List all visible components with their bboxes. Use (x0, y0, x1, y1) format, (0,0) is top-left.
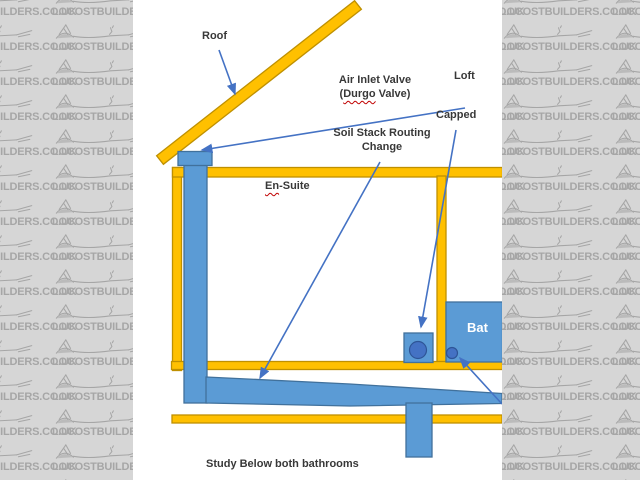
durgo-suffix: Valve) (376, 88, 411, 100)
locost-car-logo-icon (613, 163, 640, 182)
locost-car-logo-icon (501, 303, 596, 322)
locost-car-logo-icon (501, 338, 596, 357)
watermark-tile: LOCOSTBUILDERS.CO.UK (0, 268, 52, 303)
ensuite-suffix: -Suite (279, 180, 310, 192)
routing-line1: Soil Stack Routing (329, 126, 435, 140)
locost-car-logo-icon (613, 23, 640, 42)
watermark-tile: LOCOSTBUILDERS.CO.UK (500, 233, 612, 268)
watermark-text: LOCOSTBUILDERS.CO.UK (500, 6, 612, 19)
locost-car-logo-icon (0, 338, 36, 357)
ensuite-floor-joist (172, 362, 503, 370)
watermark-tile: LOCOSTBUILDERS.CO.UK (612, 303, 640, 338)
roof-arrow (219, 50, 235, 94)
watermark-tile: LOCOSTBUILDERS.CO.UK (0, 408, 52, 443)
watermark-tile: LOCOSTBUILDERS.CO.UK (612, 338, 640, 373)
locost-car-logo-icon (0, 303, 36, 322)
watermark-tile: LOCOSTBUILDERS.CO.UK (500, 373, 612, 408)
watermark-tile: LOCOSTBUILDERS.CO.UK (0, 233, 52, 268)
watermark-text: LOCOSTBUILDERS.CO.UK (0, 461, 52, 474)
watermark-tile: LOCOSTBUILDERS.CO.UK (500, 0, 612, 23)
watermark-tile: LOCOSTBUILDERS.CO.UK (612, 0, 640, 23)
locost-car-logo-icon (501, 268, 596, 287)
watermark-tile: LOCOSTBUILDERS.CO.UK (500, 58, 612, 93)
locost-car-logo-icon (501, 58, 596, 77)
routing-change-arrow (260, 162, 380, 378)
locost-car-logo-icon (613, 373, 640, 392)
roof-label: Roof (202, 29, 227, 43)
loft-label: Loft (454, 69, 475, 83)
locost-car-logo-icon (0, 128, 36, 147)
watermark-text: LOCOSTBUILDERS.CO.UK (500, 111, 612, 124)
watermark-text: LOCOSTBUILDERS.CO.UK (0, 181, 52, 194)
watermark-tile: LOCOSTBUILDERS.CO.UK (0, 58, 52, 93)
locost-car-logo-icon (613, 303, 640, 322)
watermark-tile: LOCOSTBUILDERS.CO.UK (500, 23, 612, 58)
locost-car-logo-icon (501, 373, 596, 392)
locost-car-logo-icon (613, 198, 640, 217)
locost-car-logo-icon (0, 163, 36, 182)
watermark-tile: LOCOSTBUILDERS.CO.UK (500, 408, 612, 443)
watermark-text: LOCOSTBUILDERS.CO.UK (0, 111, 52, 124)
locost-car-logo-icon (501, 443, 596, 462)
watermark-text: LOCOSTBUILDERS.CO.UK (612, 41, 640, 54)
soil-stack-vertical (184, 164, 207, 404)
locost-car-logo-icon (501, 233, 596, 252)
watermark-text: LOCOSTBUILDERS.CO.UK (612, 426, 640, 439)
watermark-text: LOCOSTBUILDERS.CO.UK (500, 216, 612, 229)
watermark-text: LOCOSTBUILDERS.CO.UK (500, 286, 612, 299)
locost-car-logo-icon (0, 23, 36, 42)
watermark-tile: LOCOSTBUILDERS.CO.UK (612, 58, 640, 93)
watermark-tile: LOCOSTBUILDERS.CO.UK (500, 163, 612, 198)
watermark-text: LOCOSTBUILDERS.CO.UK (500, 426, 612, 439)
watermark-text: LOCOSTBUILDERS.CO.UK (612, 216, 640, 229)
watermark-tile: LOCOSTBUILDERS.CO.UK (0, 128, 52, 163)
lower-stub-pipe (406, 403, 432, 457)
watermark-tile: LOCOSTBUILDERS.CO.UK (612, 163, 640, 198)
watermark-tile: LOCOSTBUILDERS.CO.UK (0, 93, 52, 128)
watermark-text: LOCOSTBUILDERS.CO.UK (0, 6, 52, 19)
lower-floor-joist (172, 415, 502, 423)
soil-stack-diagram (133, 0, 502, 480)
locost-car-logo-icon (613, 408, 640, 427)
locost-car-logo-icon (613, 268, 640, 287)
watermark-tile: LOCOSTBUILDERS.CO.UK (0, 198, 52, 233)
locost-car-logo-icon (613, 128, 640, 147)
watermark-text: LOCOSTBUILDERS.CO.UK (612, 251, 640, 264)
air-inlet-valve-label: Air Inlet Valve (Durgo Valve) (333, 73, 417, 101)
watermark-text: LOCOSTBUILDERS.CO.UK (500, 76, 612, 89)
watermark-tile: LOCOSTBUILDERS.CO.UK (0, 338, 52, 373)
locost-car-logo-icon (501, 408, 596, 427)
watermark-tile: LOCOSTBUILDERS.CO.UK (500, 338, 612, 373)
watermark-tile: LOCOSTBUILDERS.CO.UK (0, 443, 52, 478)
watermark-text: LOCOSTBUILDERS.CO.UK (500, 181, 612, 194)
watermark-tile: LOCOSTBUILDERS.CO.UK (0, 0, 52, 23)
watermark-tile: LOCOSTBUILDERS.CO.UK (0, 163, 52, 198)
watermark-text: LOCOSTBUILDERS.CO.UK (0, 286, 52, 299)
locost-car-logo-icon (613, 58, 640, 77)
watermark-text: LOCOSTBUILDERS.CO.UK (612, 181, 640, 194)
locost-car-logo-icon (0, 198, 36, 217)
left-wall (173, 168, 182, 371)
bathroom-label: Bat (467, 320, 488, 335)
watermark-tile: LOCOSTBUILDERS.CO.UK (612, 443, 640, 478)
locost-car-logo-icon (0, 268, 36, 287)
watermark-text: LOCOSTBUILDERS.CO.UK (0, 356, 52, 369)
bathroom-wall (437, 176, 446, 362)
soil-pipe-horizontal (206, 377, 502, 406)
watermark-tile: LOCOSTBUILDERS.CO.UK (612, 128, 640, 163)
watermark-tile: LOCOSTBUILDERS.CO.UK (612, 233, 640, 268)
watermark-text: LOCOSTBUILDERS.CO.UK (0, 426, 52, 439)
watermark-text: LOCOSTBUILDERS.CO.UK (0, 216, 52, 229)
watermark-text: LOCOSTBUILDERS.CO.UK (612, 321, 640, 334)
watermark-text: LOCOSTBUILDERS.CO.UK (500, 251, 612, 264)
loft-floor-joist (173, 168, 503, 178)
watermark-tile: LOCOSTBUILDERS.CO.UK (612, 373, 640, 408)
watermark-tile: LOCOSTBUILDERS.CO.UK (500, 303, 612, 338)
watermark-text: LOCOSTBUILDERS.CO.UK (0, 251, 52, 264)
locost-car-logo-icon (501, 128, 596, 147)
capped-pipe-end-circle (410, 342, 427, 359)
locost-car-logo-icon (0, 93, 36, 112)
watermark-tile: LOCOSTBUILDERS.CO.UK (0, 23, 52, 58)
watermark-tile: LOCOSTBUILDERS.CO.UK (500, 268, 612, 303)
watermark-text: LOCOSTBUILDERS.CO.UK (500, 146, 612, 159)
locost-car-logo-icon (0, 233, 36, 252)
watermark-text: LOCOSTBUILDERS.CO.UK (612, 111, 640, 124)
locost-car-logo-icon (613, 443, 640, 462)
locost-car-logo-icon (613, 93, 640, 112)
watermark-text: LOCOSTBUILDERS.CO.UK (612, 356, 640, 369)
locost-car-logo-icon (501, 93, 596, 112)
watermark-tile: LOCOSTBUILDERS.CO.UK (0, 373, 52, 408)
locost-car-logo-icon (613, 338, 640, 357)
watermark-text: LOCOSTBUILDERS.CO.UK (612, 6, 640, 19)
watermark-tile: LOCOSTBUILDERS.CO.UK (612, 408, 640, 443)
locost-car-logo-icon (0, 373, 36, 392)
locost-car-logo-icon (613, 233, 640, 252)
study-label: Study Below both bathrooms (206, 457, 359, 471)
watermark-tile: LOCOSTBUILDERS.CO.UK (500, 198, 612, 233)
locost-car-logo-icon (501, 198, 596, 217)
watermark-text: LOCOSTBUILDERS.CO.UK (0, 146, 52, 159)
watermark-text: LOCOSTBUILDERS.CO.UK (500, 356, 612, 369)
watermark-text: LOCOSTBUILDERS.CO.UK (612, 461, 640, 474)
locost-car-logo-icon (0, 443, 36, 462)
locost-car-logo-icon (501, 163, 596, 182)
watermark-text: LOCOSTBUILDERS.CO.UK (0, 76, 52, 89)
soil-stack-routing-label: Soil Stack Routing Change (329, 126, 435, 154)
locost-car-logo-icon (0, 408, 36, 427)
ensuite-word: En (265, 180, 279, 192)
watermark-text: LOCOSTBUILDERS.CO.UK (500, 391, 612, 404)
watermark-tile: LOCOSTBUILDERS.CO.UK (0, 303, 52, 338)
watermark-text: LOCOSTBUILDERS.CO.UK (500, 461, 612, 474)
diagram-panel: Roof Air Inlet Valve (Durgo Valve) Loft … (133, 0, 502, 480)
watermark-text: LOCOSTBUILDERS.CO.UK (500, 321, 612, 334)
air-inlet-valve-line2: (Durgo Valve) (333, 87, 417, 101)
watermark-text: LOCOSTBUILDERS.CO.UK (0, 41, 52, 54)
watermark-text: LOCOSTBUILDERS.CO.UK (0, 321, 52, 334)
capped-label: Capped (436, 108, 476, 122)
routing-line2: Change (329, 140, 435, 154)
durgo-valve-cap (178, 152, 212, 166)
durgo-word: Durgo (343, 88, 375, 100)
watermark-text: LOCOSTBUILDERS.CO.UK (0, 391, 52, 404)
watermark-text: LOCOSTBUILDERS.CO.UK (612, 76, 640, 89)
watermark-text: LOCOSTBUILDERS.CO.UK (612, 286, 640, 299)
bathroom-pipe-end-circle (447, 348, 458, 359)
watermark-text: LOCOSTBUILDERS.CO.UK (500, 41, 612, 54)
watermark-text: LOCOSTBUILDERS.CO.UK (612, 391, 640, 404)
watermark-text: LOCOSTBUILDERS.CO.UK (612, 146, 640, 159)
watermark-tile: LOCOSTBUILDERS.CO.UK (500, 93, 612, 128)
watermark-tile: LOCOSTBUILDERS.CO.UK (500, 128, 612, 163)
locost-car-logo-icon (0, 58, 36, 77)
watermark-tile: LOCOSTBUILDERS.CO.UK (500, 443, 612, 478)
locost-car-logo-icon (501, 23, 596, 42)
air-inlet-valve-line1: Air Inlet Valve (333, 73, 417, 87)
watermark-tile: LOCOSTBUILDERS.CO.UK (612, 93, 640, 128)
watermark-tile: LOCOSTBUILDERS.CO.UK (612, 23, 640, 58)
watermark-tile: LOCOSTBUILDERS.CO.UK (612, 198, 640, 233)
watermark-tile: LOCOSTBUILDERS.CO.UK (612, 268, 640, 303)
ensuite-label: En-Suite (265, 179, 310, 193)
